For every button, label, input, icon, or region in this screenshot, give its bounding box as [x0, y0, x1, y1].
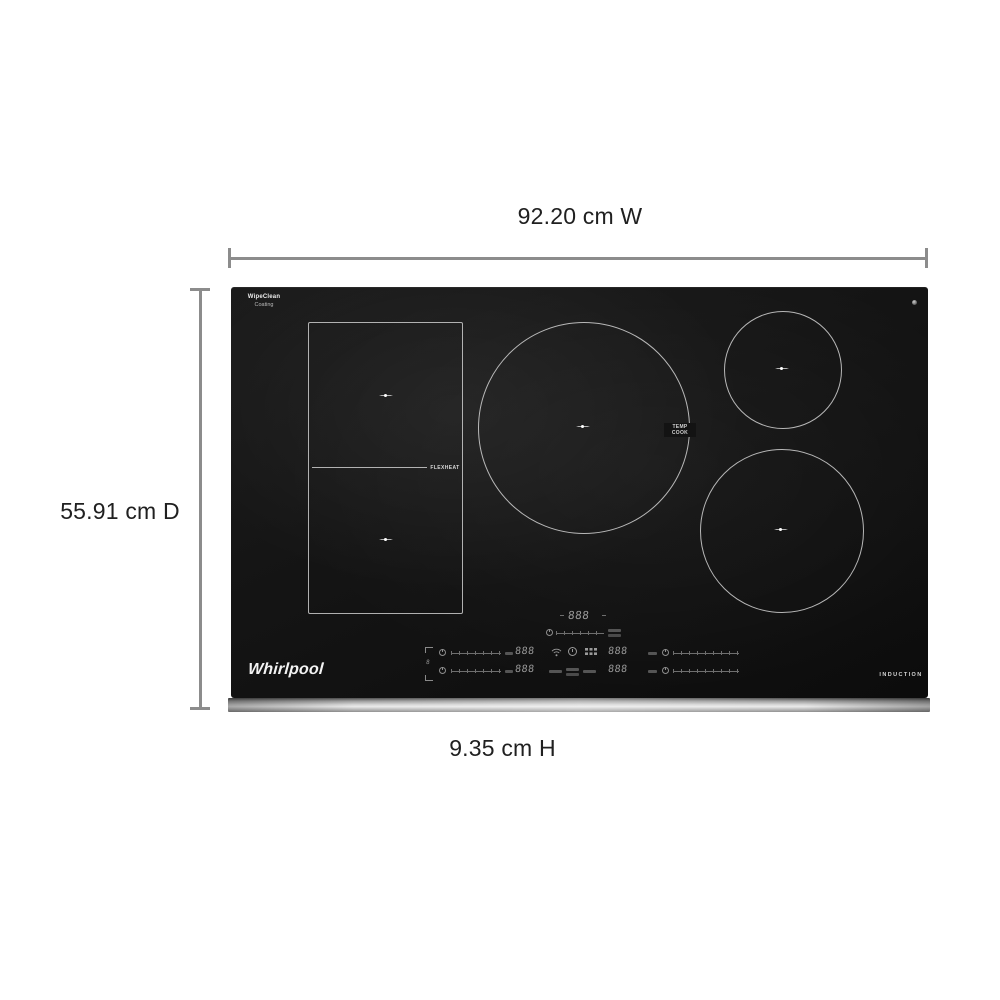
power-icon: [662, 649, 669, 656]
height-dimension-label: 9.35 cm H: [380, 735, 625, 762]
plus-tick: [602, 615, 606, 616]
screw-dot-icon: [912, 300, 917, 305]
center-burner-controls: 888: [540, 609, 636, 633]
power-icon: [439, 649, 446, 656]
flexheat-label: FLEXHEAT: [428, 465, 462, 471]
burner-center-marker: [774, 529, 788, 530]
flexheat-zone: FLEXHEAT: [308, 322, 463, 614]
depth-line-bottom-cap: [190, 707, 210, 710]
flex-link-bracket-top: [425, 647, 433, 653]
temp-cook-label: TEMP COOK: [664, 423, 696, 437]
burner-medium: [700, 449, 864, 613]
width-dimension-line: [228, 248, 928, 268]
power-slider: [451, 669, 501, 673]
preset-label: [566, 668, 579, 671]
burner-large: [478, 322, 690, 534]
zone-mode-label: [505, 652, 513, 655]
temp-cook-mode-label: [608, 629, 621, 632]
right-bottom-display: 888: [607, 664, 628, 675]
burner-center-marker: [379, 539, 393, 540]
stainless-trim: [228, 698, 930, 712]
power-slider: [673, 651, 739, 655]
right-top-display: 888: [607, 646, 628, 657]
power-icon: [546, 629, 553, 636]
induction-label: INDUCTION: [879, 672, 923, 678]
depth-dimension-line: [190, 288, 210, 710]
burner-center-marker: [576, 426, 590, 427]
wipeclean-coating-badge: WipeClean Coating: [245, 294, 283, 308]
power-slider: [556, 631, 604, 635]
zone-mode-label: [505, 670, 513, 673]
keypad-icon: [585, 648, 597, 656]
control-panel: 8 888 888: [421, 645, 743, 685]
burner-center-marker: [379, 395, 393, 396]
width-line-rule: [228, 257, 928, 260]
zone-mode-label: [648, 670, 657, 673]
cooktop-surface: WipeClean Coating FLEXHEAT TEMP COOK 888: [231, 287, 928, 698]
zone-mode-label: [648, 652, 657, 655]
preset-label: [583, 670, 596, 673]
power-button-icon: [568, 647, 577, 656]
power-icon: [439, 667, 446, 674]
flex-link-bracket-bottom: [425, 675, 433, 681]
wifi-icon: [551, 648, 562, 657]
depth-dimension-label: 55.91 cm D: [40, 498, 200, 525]
preset-label: [549, 670, 562, 673]
width-dimension-label: 92.20 cm W: [440, 203, 720, 230]
depth-line-rule: [199, 288, 202, 710]
power-slider: [673, 669, 739, 673]
burner-small: [724, 311, 842, 429]
width-line-right-cap: [925, 248, 928, 268]
left-top-display: 888: [514, 646, 535, 657]
badge-line2: Coating: [245, 302, 283, 309]
whirlpool-logo: Whirlpool: [247, 661, 324, 679]
center-power-display: 888: [567, 609, 590, 622]
left-bottom-display: 888: [514, 664, 535, 675]
flexheat-divider-line: [312, 467, 427, 468]
power-icon: [662, 667, 669, 674]
flex-link-display: 8: [426, 659, 431, 666]
minus-tick: [560, 615, 564, 616]
burner-center-marker: [775, 368, 789, 369]
power-slider: [451, 651, 501, 655]
badge-line1: WipeClean: [245, 294, 283, 302]
